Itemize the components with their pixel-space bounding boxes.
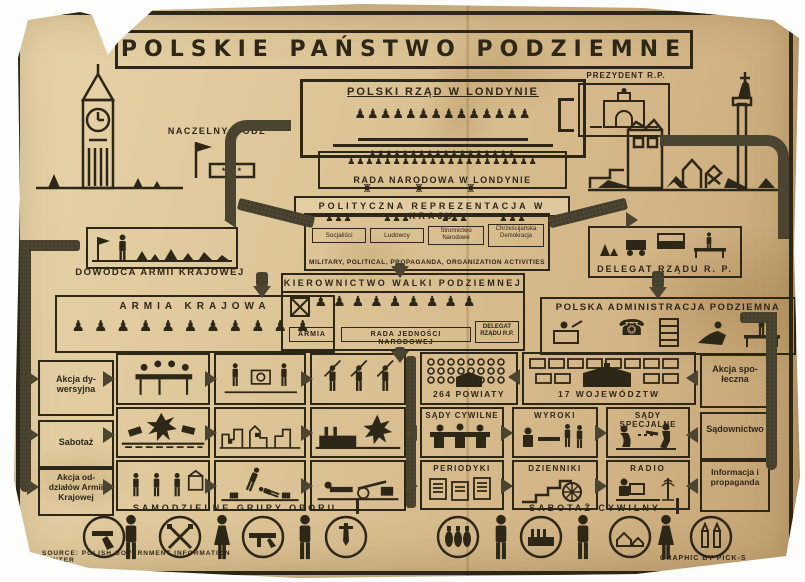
verdicts-label: WYROKI [514,411,596,420]
radio-operators-box [214,353,306,405]
counties-dots-icon [426,357,510,387]
special-courts-scene [612,421,680,451]
arrowhead-between-press [501,478,513,494]
information-propaganda-box: Informa­cja i pro­paganda [700,460,770,512]
ak-detachments-label: Akcja od­działów Armii Krajowej [43,473,109,502]
factory-explosion-box [310,407,406,458]
voivodeships-squares-icon [528,357,686,388]
left-trunk [20,240,31,492]
right-trunk [766,312,777,470]
arrowhead-left-courts [405,425,417,441]
planning-table-scene [120,357,206,398]
reading-figure-icon [692,319,732,347]
party-figures: ♟♟♟ [488,213,538,224]
arrowhead-left [686,427,698,443]
government-in-london-label: POLSKI RZĄD W LONDYNIE [303,86,583,99]
periodicals-label: PERIODYKI [422,464,502,473]
poster-paper: POLSKIE PAŃSTWO PODZIEMNE [0,0,805,582]
information-propaganda-label: Informa­cja i pro­paganda [705,468,765,488]
counties-box: 264 POWIATY [420,352,518,405]
social-action-label: Akcja spo­łeczna [705,364,765,385]
party-label: Socjaliści [313,232,365,239]
ak-commander-box [86,227,238,269]
train-derailment-scene [120,411,206,452]
arrowhead-between-press [595,478,607,494]
graphic-credit: GRAPHIC BY PICK-S [660,555,780,563]
arrowhead-between-courts [595,425,607,441]
platform-step [358,138,528,141]
kwp-delegate-label: DELEGAT RZĄDU R.P. [476,324,518,338]
arrowhead-into-diversion [27,371,39,387]
directorate-label: KIEROWNICTWO WALKI PODZIEMNEJ [283,278,523,293]
radio-scene [612,474,680,504]
arrowhead-into-ak-commander [224,212,236,228]
dagger-icon [323,514,369,560]
civilian-woman-icon [655,514,677,560]
arrowhead-into-press [406,478,418,494]
president-box [578,83,670,137]
arrowhead-between-grid [205,371,217,387]
civilian-man-icon [294,514,316,560]
periodicals-box: PERIODYKI [420,460,504,510]
arrowhead-between-grid [205,425,217,441]
sabotage-label: Sabotaż [43,437,109,447]
arrowhead-between-grid [205,478,217,494]
arrowhead-into-delegate [626,212,638,228]
party-christian-democrats-box: Chrześcijańska Demokracja [488,224,544,247]
party-figures: ♟♟♟ [430,213,480,224]
platform-step [333,144,553,147]
party-label: Chrześcijańska Demokracja [489,226,543,240]
parties-caption: MILITARY, POLITICAL, PROPAGANDA, ORGANIZ… [306,259,548,266]
connector-line [558,98,561,132]
flow-delegate-to-administration [652,271,664,288]
filing-cabinet-icon [654,317,684,349]
social-action-box: Akcja spo­łeczna [700,354,770,408]
president-palace-icon [582,87,666,131]
special-courts-box: SĄDY SPECJALNE [606,407,690,458]
party-label: Stronnictwo Narodowe [429,228,483,242]
home-army-label: ARMIA KRAJOWA [57,301,333,313]
council-figures-row: ♟♟♟♟♟♟♟♟♟♟♟♟♟♟♟♟♟♟♟♟♟ [320,156,565,167]
flow-commander-to-home-army [256,272,268,287]
civil-courts-scene [426,422,494,450]
government-delegate-label: DELEGAT RZĄDU R. P. [590,264,740,274]
factory-icon [518,514,564,560]
ruined-buildings-box [214,407,306,458]
voivodeships-box: 17 WOJEWÓDZTW [522,352,696,405]
arrowhead-into-counties [508,369,520,385]
home-army-figures: ♟♟♟♟♟♟♟♟♟♟♟ [61,317,329,335]
civil-courts-label: SĄDY CYWILNE [422,411,502,420]
arrowhead-left [686,478,698,494]
connector-line [558,129,574,132]
judiciary-box: Sądow­nictwo [700,412,770,460]
party-national-box: Stronnictwo Narodowe [428,226,484,245]
directorate-figures: ♟♟♟♟♟♟♟♟♟ [313,293,483,310]
party-socialists-box: Socjaliści [312,228,366,243]
armed-soldiers-scene [314,357,402,399]
train-derailment-box [116,407,210,458]
ruined-buildings-scene [218,411,302,451]
farmer-icon [572,514,594,560]
arrowhead-into-grid [103,479,115,495]
home-army-box: ARMIA KRAJOWA ♟♟♟♟♟♟♟♟♟♟♟ [55,295,335,353]
arrowhead-down [649,287,667,299]
government-ministers-figures: ♟♟♟♟♟♟♟♟♟♟♟♟♟♟ [303,106,583,122]
radio-label: RADIO [608,464,688,473]
voivodeships-label: 17 WOJEWÓDZTW [524,390,694,400]
party-peasants-box: Ludowcy [370,228,424,243]
street-fight-scene [218,464,302,504]
arrowhead-into-sabotage [27,427,39,443]
flow-band-right-curve [660,135,789,239]
telephone-icon: ☎ [618,315,646,341]
president-label: PREZYDENT R.P. [576,71,676,80]
verdicts-box: WYROKI [512,407,598,458]
rifle-cartridges-icon [688,514,734,560]
arrowhead-into-grid [103,427,115,443]
radio-operators-scene [218,357,302,397]
arrowhead-down [253,286,271,298]
scanned-poster: POLSKIE PAŃSTWO PODZIEMNE [0,0,805,582]
arrowhead-between-grid [301,478,313,494]
diversion-action-label: Akcja dy­wersyjna [43,374,109,395]
civil-courts-box: SĄDY CYWILNE [420,407,504,458]
standing-fighters-scene [120,464,206,505]
source-credit: SOURCE: POLISH GOVERNMENT INFORMATION CE… [42,550,262,565]
counties-label: 264 POWIATY [422,390,516,400]
arrowhead-into-grid [103,371,115,387]
planning-table-box [116,353,210,405]
party-figures: ♟♟♟ [372,213,422,224]
arrowhead-between-grid [301,425,313,441]
ak-commander-scene [90,231,234,265]
arrowhead-left [686,370,698,386]
printing-press-icon [518,474,588,504]
houses-icon [607,514,653,560]
factory-explosion-scene [314,411,402,453]
kwp-council-box: RADA JEDNOŚCI NARODOWEJ [341,327,471,342]
dailies-label: DZIENNIKI [514,464,596,473]
kwp-delegate-box: DELEGAT RZĄDU R.P. [475,321,519,343]
party-label: Ludowcy [371,232,423,239]
arrowhead-between-grid [301,371,313,387]
arrowhead-down [391,266,409,278]
worker-icon [490,514,512,560]
political-parties-box: ♟♟♟ ♟♟♟ ♟♟♟ ♟♟♟ Socjaliści Ludowcy Stron… [304,213,550,271]
party-figures: ♟♟♟ [314,213,364,224]
clerk-desk-icon [550,317,610,347]
eagle-statues-row: ♜♜♜ [350,182,530,195]
underground-administration-box: POLSKA ADMINISTRACJA PODZIEMNA ☎ [540,297,796,355]
government-in-london-box: POLSKI RZĄD W LONDYNIE ♟♟♟♟♟♟♟♟♟♟♟♟♟♟ [300,79,586,158]
diversion-action-box: Akcja dy­wersyjna [38,360,114,416]
arrowhead-between-courts [501,425,513,441]
ak-commander-label: DOWÓDCA ARMII KRAJOWEJ [72,268,248,279]
periodicals-icon [428,475,494,503]
hand-grenades-icon [435,514,481,560]
kwp-council-label: RADA JEDNOŚCI NARODOWEJ [342,331,470,347]
arrowhead-into-detachments [27,479,39,495]
verdicts-scene [518,421,588,451]
judiciary-label: Sądow­nictwo [705,424,765,434]
